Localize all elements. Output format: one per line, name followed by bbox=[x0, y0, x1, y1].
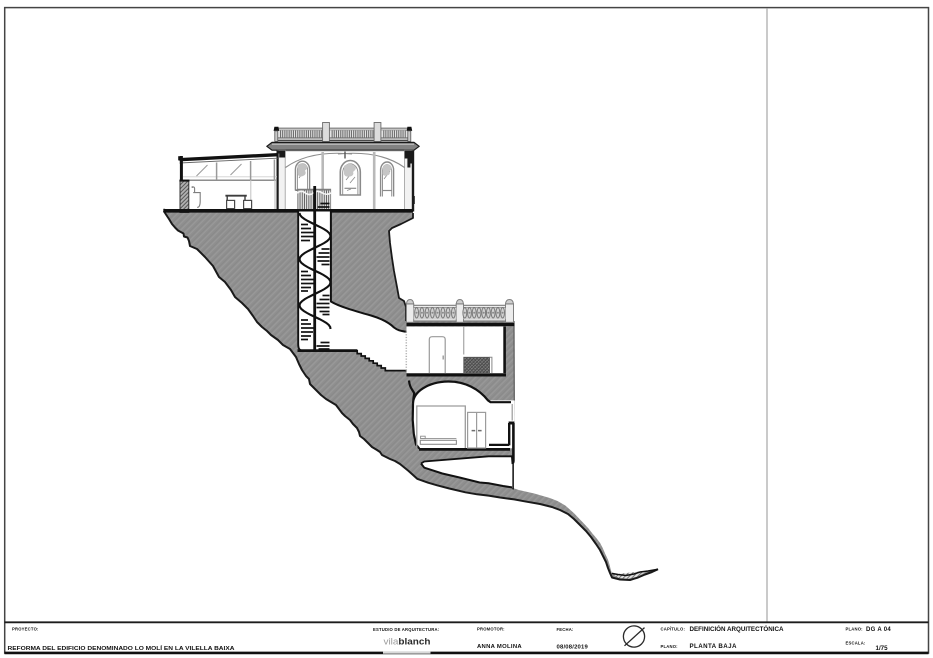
svg-text:PLANTA BAJA: PLANTA BAJA bbox=[690, 643, 737, 650]
svg-text:ANNA MOLINA: ANNA MOLINA bbox=[477, 644, 522, 650]
svg-text:PROMOTOR:: PROMOTOR: bbox=[477, 627, 505, 632]
svg-text:1/75: 1/75 bbox=[876, 645, 889, 652]
svg-text:CAPÍTULO:: CAPÍTULO: bbox=[661, 627, 686, 632]
svg-text:ESCALA:: ESCALA: bbox=[846, 641, 866, 646]
svg-text:PLANO:: PLANO: bbox=[846, 627, 863, 632]
svg-text:PLANO:: PLANO: bbox=[661, 644, 678, 649]
svg-text:PROYECTO:: PROYECTO: bbox=[12, 627, 39, 632]
svg-text:REFORMA DEL EDIFICIO DENOMINAD: REFORMA DEL EDIFICIO DENOMINADO LO MOLÍ … bbox=[8, 644, 236, 652]
svg-text:08/08/2019: 08/08/2019 bbox=[557, 645, 589, 651]
svg-text:vilablanch: vilablanch bbox=[384, 637, 431, 647]
svg-text:DEFINICIÓN ARQUITECTÓNICA: DEFINICIÓN ARQUITECTÓNICA bbox=[690, 625, 785, 633]
svg-text:DG A 04: DG A 04 bbox=[866, 627, 891, 633]
svg-text:ESTUDIO DE ARQUITECTURA:: ESTUDIO DE ARQUITECTURA: bbox=[373, 627, 439, 632]
svg-text:FECHA:: FECHA: bbox=[557, 627, 574, 632]
